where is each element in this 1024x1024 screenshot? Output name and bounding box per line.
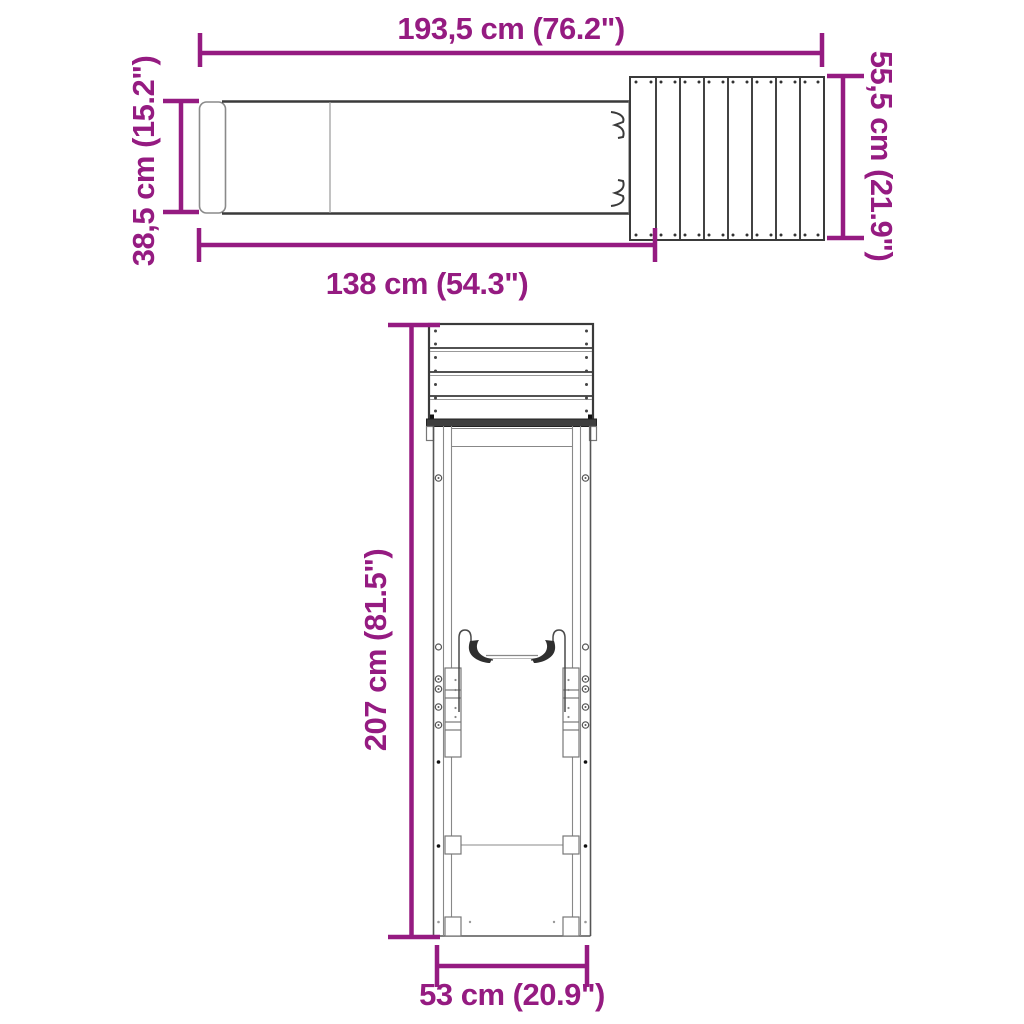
- dimension-label-overall-length: 193,5 cm (76.2"): [397, 11, 624, 47]
- dimension-label-platform-depth: 55,5 cm (21.9"): [863, 51, 899, 262]
- dimension-diagram: 193,5 cm (76.2") 55,5 cm (21.9") 38,5 cm…: [0, 0, 1024, 1024]
- dim-line-slide-length: [199, 228, 655, 262]
- dimension-label-overall-height: 207 cm (81.5"): [358, 549, 394, 751]
- dim-line-slide-width: [163, 101, 199, 212]
- handle-icon: [611, 112, 624, 206]
- dimension-label-base-width: 53 cm (20.9"): [419, 977, 605, 1013]
- dim-line-platform-depth: [827, 76, 864, 238]
- roof-front-view: [427, 324, 597, 427]
- slide-front-view: [459, 630, 565, 712]
- dimension-label-slide-length: 138 cm (54.3"): [326, 266, 528, 302]
- slide-top-view: [200, 101, 630, 214]
- top-view: [200, 77, 825, 240]
- handle-icon: [469, 640, 555, 663]
- front-view: [427, 324, 597, 936]
- platform-top-view: [630, 77, 824, 240]
- dimension-label-slide-width: 38,5 cm (15.2"): [126, 56, 162, 267]
- bracket-plates: [445, 668, 579, 757]
- roof-edge-bar: [427, 419, 597, 427]
